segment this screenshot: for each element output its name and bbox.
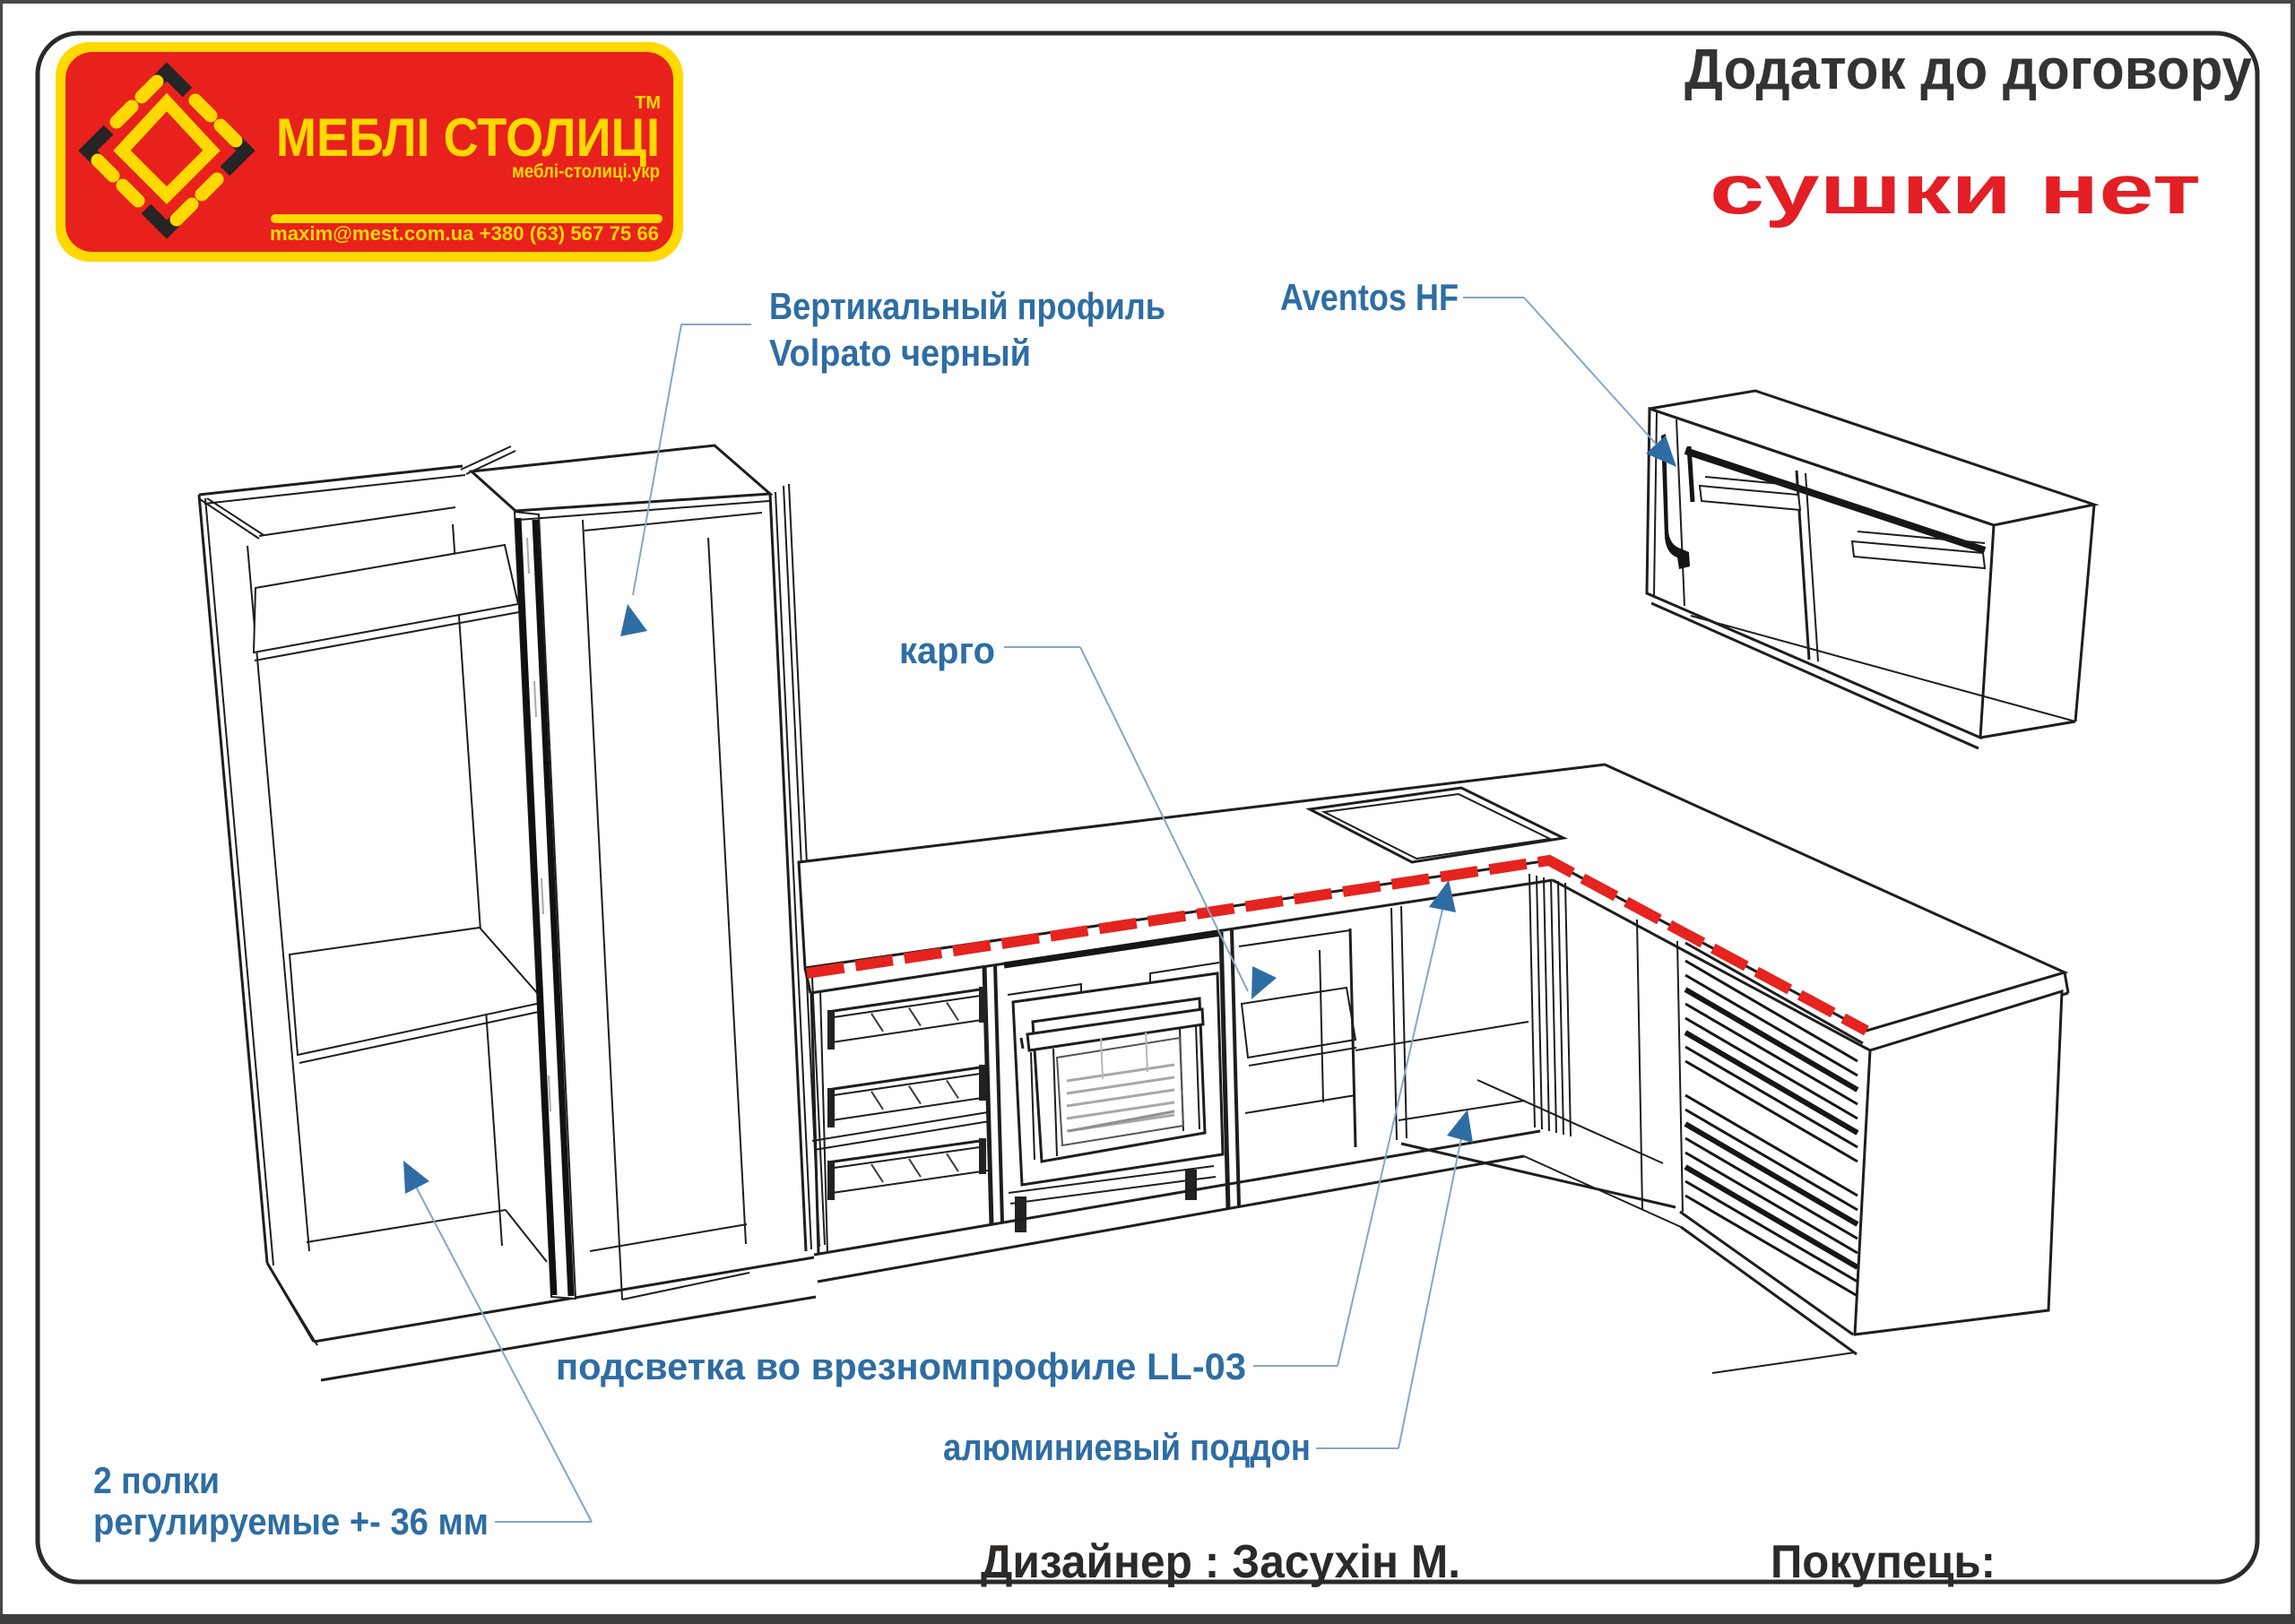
svg-text:Volpato черный: Volpato черный <box>769 332 1031 374</box>
svg-text:меблі-столиці.укр: меблі-столиці.укр <box>512 161 660 182</box>
svg-text:сушки нет: сушки нет <box>1710 150 2201 229</box>
svg-text:Вертикальный профиль: Вертикальный профиль <box>769 285 1165 327</box>
svg-text:Дизайнер : Засухін М.: Дизайнер : Засухін М. <box>981 1536 1460 1588</box>
svg-text:2 полки: 2 полки <box>93 1459 220 1501</box>
svg-text:maxim@mest.com.ua +380 (63) 5: maxim@mest.com.ua +380 (63) 567 75 66 <box>270 222 659 245</box>
svg-text:Aventos HF: Aventos HF <box>1280 276 1459 318</box>
svg-text:подсветка во врезномпрофиле LL: подсветка во врезномпрофиле LL-03 <box>556 1345 1246 1387</box>
svg-text:алюминиевый поддон: алюминиевый поддон <box>943 1426 1311 1468</box>
svg-text:Додаток до договору: Додаток до договору <box>1684 37 2252 101</box>
svg-text:карго: карго <box>899 629 995 671</box>
svg-text:регулируемые +- 36 мм: регулируемые +- 36 мм <box>93 1500 489 1542</box>
svg-text:МЕБЛІ СТОЛИЦІ: МЕБЛІ СТОЛИЦІ <box>276 108 660 168</box>
svg-text:Покупець:: Покупець: <box>1771 1536 1996 1588</box>
